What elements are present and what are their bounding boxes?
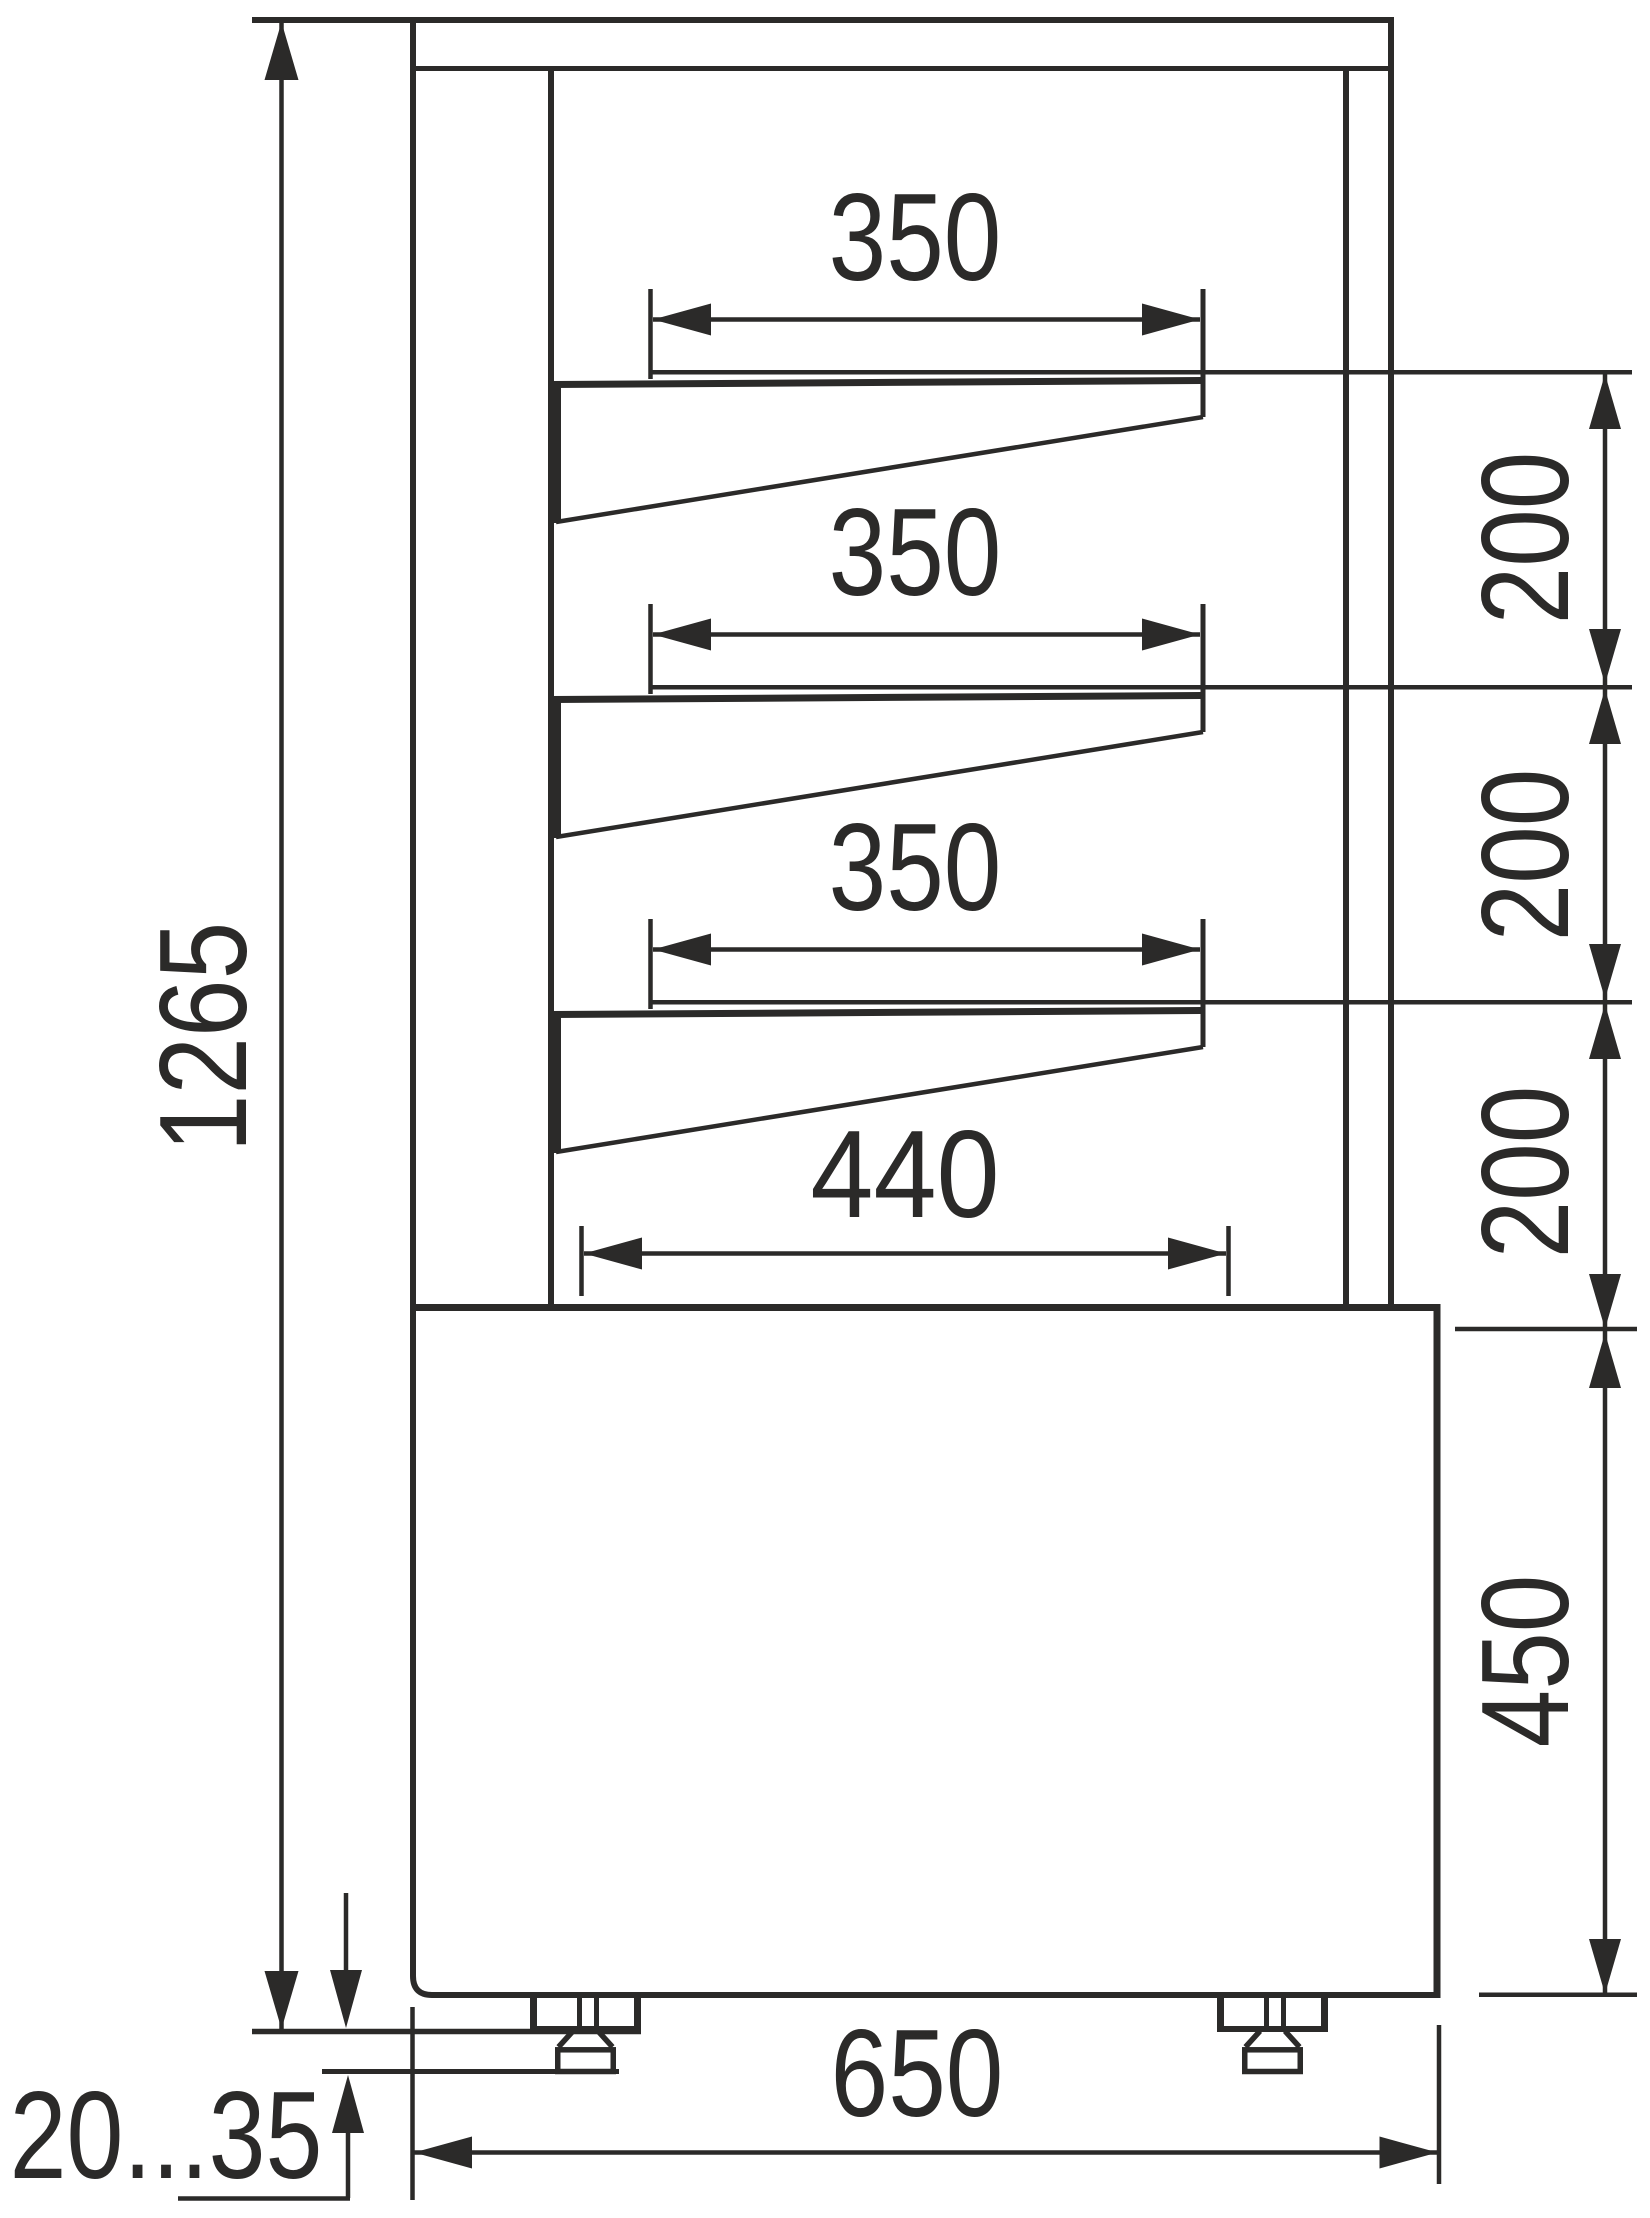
svg-text:20...35: 20...35: [10, 2067, 323, 2206]
svg-text:200: 200: [1457, 452, 1595, 625]
svg-text:350: 350: [829, 484, 1002, 622]
svg-text:1265: 1265: [135, 922, 273, 1152]
svg-text:650: 650: [831, 2005, 1004, 2143]
svg-text:350: 350: [829, 169, 1002, 307]
svg-text:350: 350: [829, 799, 1002, 937]
svg-text:440: 440: [810, 1105, 999, 1244]
svg-text:200: 200: [1457, 769, 1595, 942]
svg-text:200: 200: [1457, 1086, 1595, 1259]
svg-text:450: 450: [1457, 1575, 1595, 1748]
